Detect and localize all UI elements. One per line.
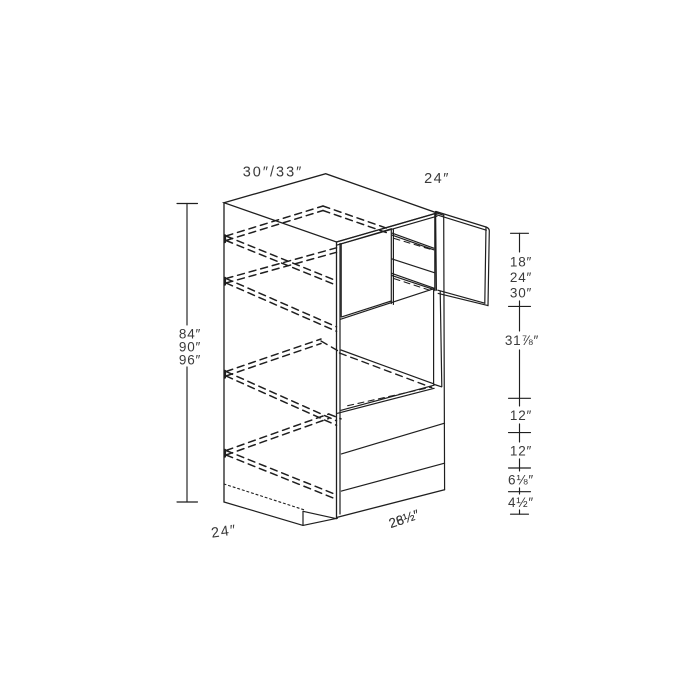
svg-text:12″: 12″ bbox=[510, 443, 532, 458]
svg-text:18″: 18″ bbox=[510, 254, 532, 269]
svg-text:4½″: 4½″ bbox=[508, 495, 534, 510]
svg-text:24″: 24″ bbox=[210, 522, 238, 541]
svg-text:30″/33″: 30″/33″ bbox=[243, 165, 304, 181]
svg-text:24″: 24″ bbox=[424, 171, 450, 187]
svg-text:6⅛″: 6⅛″ bbox=[508, 472, 534, 487]
svg-text:28½″: 28½″ bbox=[387, 507, 421, 531]
svg-text:96″: 96″ bbox=[179, 353, 201, 368]
svg-text:24″: 24″ bbox=[510, 270, 532, 285]
svg-text:30″: 30″ bbox=[510, 285, 532, 300]
svg-text:31⅞″: 31⅞″ bbox=[505, 333, 539, 348]
svg-text:12″: 12″ bbox=[510, 408, 532, 423]
